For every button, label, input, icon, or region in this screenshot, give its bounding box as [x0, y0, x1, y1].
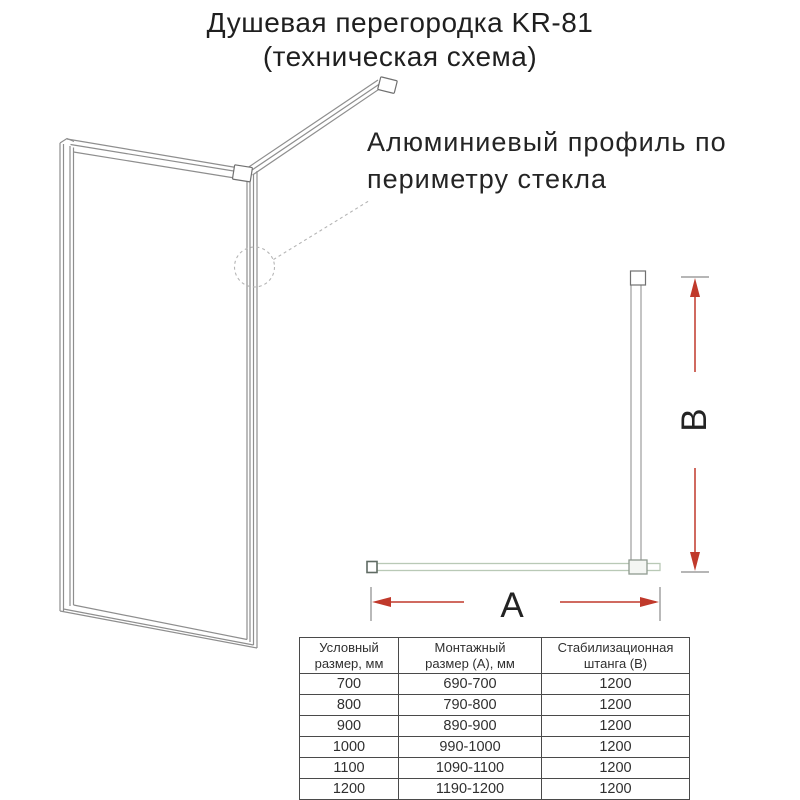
- table-cell: 1000: [300, 737, 399, 758]
- table-row: 900 890-900 1200: [300, 716, 690, 737]
- support-bar-line: [251, 83, 382, 171]
- table-cell: 1200: [542, 695, 690, 716]
- arrowhead-right: [640, 597, 659, 607]
- table-row: 700 690-700 1200: [300, 674, 690, 695]
- stabilization-bar-top-view: [367, 271, 660, 574]
- table-cell: 700: [300, 674, 399, 695]
- profile-annotation: Алюминиевый профиль по периметру стекла: [367, 124, 727, 198]
- col-header-mounting-size: Монтажный размер (А), мм: [399, 638, 542, 674]
- top-rail-line: [67, 139, 251, 170]
- table-cell: 1200: [542, 716, 690, 737]
- top-rail-line: [74, 152, 248, 180]
- arrowhead-left: [372, 597, 391, 607]
- table-cell: 1200: [542, 737, 690, 758]
- bottom-rail-line: [64, 609, 254, 645]
- stabilization-bar: [631, 284, 641, 562]
- callout-circle: [235, 247, 275, 287]
- support-bar-line: [248, 80, 378, 168]
- table-header-row: Условный размер, мм Монтажный размер (А)…: [300, 638, 690, 674]
- table-cell: 690-700: [399, 674, 542, 695]
- wall-profile-cap: [367, 562, 377, 573]
- arrowhead-up: [690, 278, 700, 297]
- table-cell: 890-900: [399, 716, 542, 737]
- corner-clamp: [232, 165, 252, 182]
- page-title: Душевая перегородка KR-81 (техническая с…: [0, 6, 800, 74]
- support-bar-line: [253, 87, 384, 176]
- table-cell: 800: [300, 695, 399, 716]
- table-row: 1200 1190-1200 1200: [300, 779, 690, 800]
- bar-to-glass-connector: [629, 560, 647, 574]
- col-header-nominal-size: Условный размер, мм: [300, 638, 399, 674]
- table-cell: 1200: [542, 674, 690, 695]
- table-cell: 900: [300, 716, 399, 737]
- arrowhead-down: [690, 552, 700, 571]
- callout-leader-line: [274, 201, 370, 260]
- callout: [235, 201, 370, 288]
- top-rail-line: [71, 145, 250, 174]
- table-cell: 1100: [300, 758, 399, 779]
- wall-bracket: [378, 77, 398, 94]
- dimension-label-B: B: [675, 408, 714, 431]
- col-header-stabilization-bar: Стабилизационная штанга (В): [542, 638, 690, 674]
- glass-panel-top-view: [377, 564, 660, 571]
- dimension-B: B: [675, 277, 714, 572]
- dimension-label-A: A: [500, 586, 524, 625]
- bottom-rail-line: [74, 605, 248, 640]
- table-cell: 1200: [542, 779, 690, 800]
- wall-mount-block: [631, 271, 646, 285]
- table-cell: 1200: [542, 758, 690, 779]
- table-cell: 790-800: [399, 695, 542, 716]
- dimension-A: A: [371, 586, 660, 625]
- table-cell: 1190-1200: [399, 779, 542, 800]
- table-row: 800 790-800 1200: [300, 695, 690, 716]
- table-cell: 1090-1100: [399, 758, 542, 779]
- bottom-rail-line: [60, 611, 257, 648]
- table-row: 1000 990-1000 1200: [300, 737, 690, 758]
- glass-panel-frame: [60, 139, 257, 649]
- table-cell: 990-1000: [399, 737, 542, 758]
- table-cell: 1200: [300, 779, 399, 800]
- size-table: Условный размер, мм Монтажный размер (А)…: [299, 637, 690, 800]
- left-profile-top-cap: [60, 139, 74, 144]
- table-row: 1100 1090-1100 1200: [300, 758, 690, 779]
